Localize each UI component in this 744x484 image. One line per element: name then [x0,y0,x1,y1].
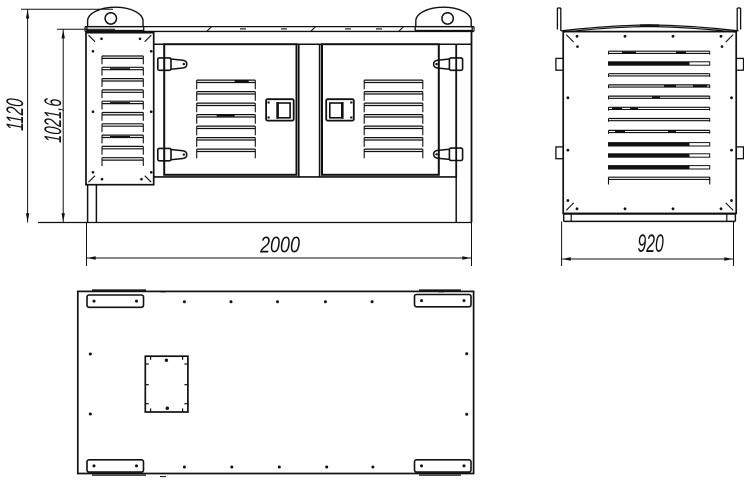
svg-text:920: 920 [637,231,664,259]
svg-text:1021,6: 1021,6 [41,97,68,143]
svg-text:1120: 1120 [2,98,28,132]
svg-text:2000: 2000 [259,232,300,258]
